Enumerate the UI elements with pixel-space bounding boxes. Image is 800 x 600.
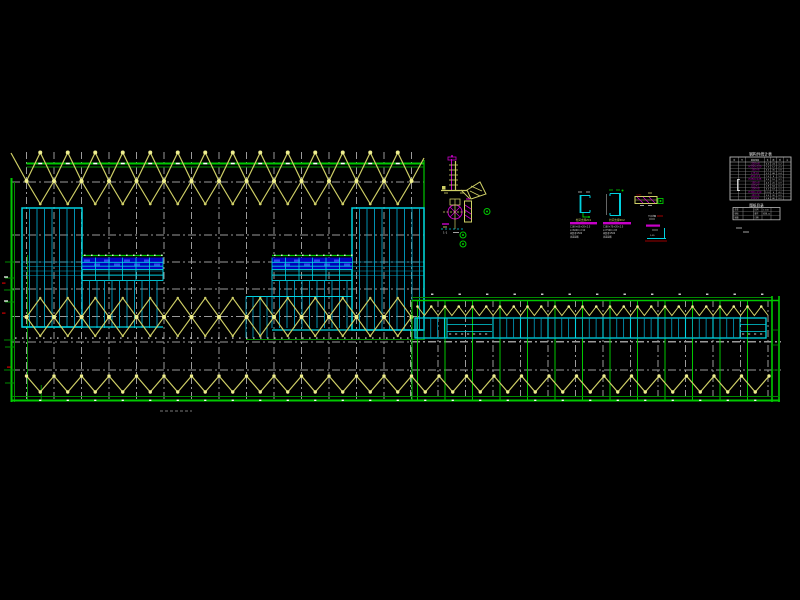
cad-drawing: 1-1柱间支撑ZC1C160×60×20×2.5L=6000 n=12间距@15… <box>0 0 800 600</box>
channel-section-symbol: [ <box>736 178 741 193</box>
svg-text:L50×5: L50×5 <box>751 197 759 200</box>
svg-text:1:100: 1:100 <box>763 210 769 212</box>
main-table-title: 钢构件统计表 <box>749 152 772 157</box>
node-detail-scale: 1:25 <box>650 235 655 237</box>
svg-text:含连接板: 含连接板 <box>603 235 613 239</box>
brace-caption-1: 柱间支撑ZC1 <box>576 218 592 222</box>
brace-caption-2: 柱间支撑ZC2 <box>609 218 625 222</box>
svg-text:含连接板: 含连接板 <box>570 235 580 239</box>
beam-grade-label: Q235 <box>636 195 642 197</box>
svg-text:间距@1500: 间距@1500 <box>603 231 616 235</box>
cad-canvas[interactable]: 1-1柱间支撑ZC1C160×60×20×2.5L=6000 n=12间距@15… <box>0 0 800 600</box>
svg-text:间距@1500: 间距@1500 <box>570 231 583 235</box>
svg-text:12.0: 12.0 <box>765 192 770 194</box>
sub-table-title: 图纸目录 <box>749 202 764 207</box>
detail-a-label: 1-1 <box>443 231 448 235</box>
